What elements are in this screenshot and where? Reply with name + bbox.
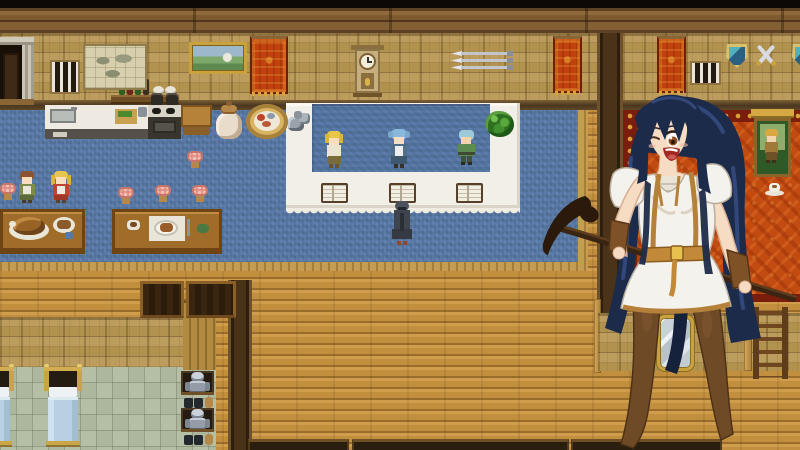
wall-cap-band <box>0 8 800 33</box>
pillar <box>22 45 34 101</box>
pink-stool[interactable] <box>118 187 134 204</box>
boot <box>194 398 203 408</box>
armor-shelf[interactable] <box>181 408 214 446</box>
bedroom-wall <box>0 317 183 367</box>
pot-small <box>205 434 213 445</box>
npc-counter-blonde[interactable] <box>324 131 344 169</box>
cutting-board-counter <box>112 105 148 139</box>
foot <box>22 200 26 203</box>
footboard <box>0 441 12 447</box>
crossed-swords-icon <box>753 43 779 68</box>
stool-base <box>4 194 12 200</box>
foot <box>56 200 60 203</box>
food <box>267 113 275 119</box>
belt <box>458 152 475 155</box>
spear-shaft <box>461 66 509 69</box>
boot <box>184 435 193 445</box>
npc-player-robed[interactable] <box>391 201 413 245</box>
table-top <box>181 105 212 127</box>
foot <box>468 162 472 165</box>
boot <box>184 398 193 408</box>
counter-base <box>112 129 148 139</box>
bed[interactable] <box>44 367 82 449</box>
open-book[interactable] <box>456 183 483 203</box>
dining-table-turkey[interactable] <box>0 209 85 254</box>
pink-stool[interactable] <box>155 185 171 202</box>
food <box>262 121 271 127</box>
floor-hatch[interactable] <box>140 281 184 318</box>
jar-knob <box>226 101 232 106</box>
apron <box>23 186 31 194</box>
kitchen-sink-counter <box>45 105 112 139</box>
red-tapestry <box>250 36 288 94</box>
spear-butt <box>507 58 513 63</box>
rock-decor <box>286 111 311 133</box>
stool-top <box>118 187 134 198</box>
oven-door <box>153 121 176 133</box>
hair-bun <box>388 131 393 138</box>
stool-top <box>187 151 203 162</box>
foot <box>62 200 66 203</box>
red-tapestry <box>657 36 686 93</box>
door-inner <box>3 53 19 101</box>
faucet <box>71 107 77 110</box>
boot <box>194 435 203 445</box>
pot-small <box>205 397 213 408</box>
foot <box>403 241 407 245</box>
shelf-lip <box>181 429 214 432</box>
foot <box>329 164 333 168</box>
wall-map <box>83 44 147 90</box>
stool-base <box>196 196 204 202</box>
pauldron <box>205 382 210 391</box>
cup <box>65 232 73 239</box>
pink-stool[interactable] <box>192 185 208 202</box>
barred-window <box>50 60 80 94</box>
stool-base <box>191 162 199 168</box>
red-tapestry <box>553 36 582 93</box>
table-front <box>183 127 210 135</box>
clock-hand <box>367 61 372 63</box>
fork <box>187 219 190 236</box>
ceramic-jar <box>213 103 244 140</box>
food-basin <box>246 101 288 141</box>
stool-top <box>192 185 208 196</box>
pauldron <box>185 419 190 428</box>
npc-counter-bluehair[interactable] <box>388 129 410 168</box>
burner <box>152 108 161 114</box>
shelf-lip <box>181 392 214 395</box>
hair-bun <box>405 131 410 138</box>
hair-side <box>339 134 343 143</box>
top-black-bar <box>0 0 800 8</box>
skirt <box>328 156 341 164</box>
npc-woman-reddress[interactable] <box>51 171 71 203</box>
burner <box>166 108 175 114</box>
threshold <box>0 99 34 105</box>
foot <box>461 162 465 165</box>
footboard <box>46 441 80 447</box>
foot <box>335 164 339 168</box>
foot <box>28 200 32 203</box>
foot <box>394 164 398 168</box>
game-viewport: RPG tavern interior scene <box>0 0 800 450</box>
pauldron <box>185 382 190 391</box>
blanket <box>0 397 10 441</box>
spear-shaft <box>461 59 509 62</box>
jar-lid <box>221 105 237 114</box>
cornice <box>0 37 34 45</box>
food <box>57 220 71 229</box>
apron <box>395 146 403 156</box>
open-book[interactable] <box>389 183 416 203</box>
label <box>53 132 67 137</box>
spear-butt <box>507 51 513 56</box>
apron <box>57 186 65 194</box>
food <box>257 114 265 121</box>
landscape-painting <box>189 42 247 74</box>
bed-inner <box>0 371 9 387</box>
stool-base <box>159 196 167 202</box>
bowl <box>197 224 209 233</box>
spear-butt <box>507 65 513 70</box>
jar-body <box>216 112 242 139</box>
grandfather-clock <box>353 45 382 97</box>
bush-decor <box>486 111 514 137</box>
kitchen-side-table <box>181 105 212 135</box>
pillow <box>0 387 9 397</box>
hilt <box>771 61 776 66</box>
character-art-overlay <box>535 88 800 450</box>
spear-shaft <box>461 52 509 55</box>
robe-trim <box>400 213 404 231</box>
hilt <box>756 61 761 66</box>
stool-top <box>0 183 16 194</box>
pink-stool[interactable] <box>187 151 203 168</box>
foot <box>400 164 404 168</box>
stone-entrance[interactable] <box>0 37 34 105</box>
barred-window <box>690 61 721 85</box>
pauldron <box>205 419 210 428</box>
stove <box>148 105 181 139</box>
skirt <box>391 156 407 164</box>
pillow <box>49 387 77 397</box>
open-book[interactable] <box>321 183 348 203</box>
bottom-table <box>248 439 349 450</box>
spear-rack <box>451 49 514 71</box>
rock <box>294 111 302 119</box>
floor-hatch[interactable] <box>186 281 236 318</box>
clock-base <box>353 93 382 97</box>
bed-inner <box>49 371 77 387</box>
pink-stool[interactable] <box>0 183 16 200</box>
drumstick <box>9 221 16 227</box>
foot <box>397 241 401 245</box>
npc-counter-teal[interactable] <box>456 130 477 166</box>
blanket <box>48 397 78 441</box>
bed[interactable] <box>0 367 14 449</box>
pot-small <box>138 107 147 117</box>
stool-top <box>155 185 171 196</box>
dining-table-meal[interactable] <box>112 209 222 254</box>
sink <box>50 109 76 123</box>
armor-shelf[interactable] <box>181 371 214 409</box>
stool-base <box>122 198 130 204</box>
npc-woman-brownhair[interactable] <box>17 171 37 203</box>
roast-turkey <box>13 217 45 235</box>
pendulum <box>365 78 370 86</box>
vegetables <box>118 111 132 117</box>
food <box>160 223 173 232</box>
tea <box>130 222 137 227</box>
